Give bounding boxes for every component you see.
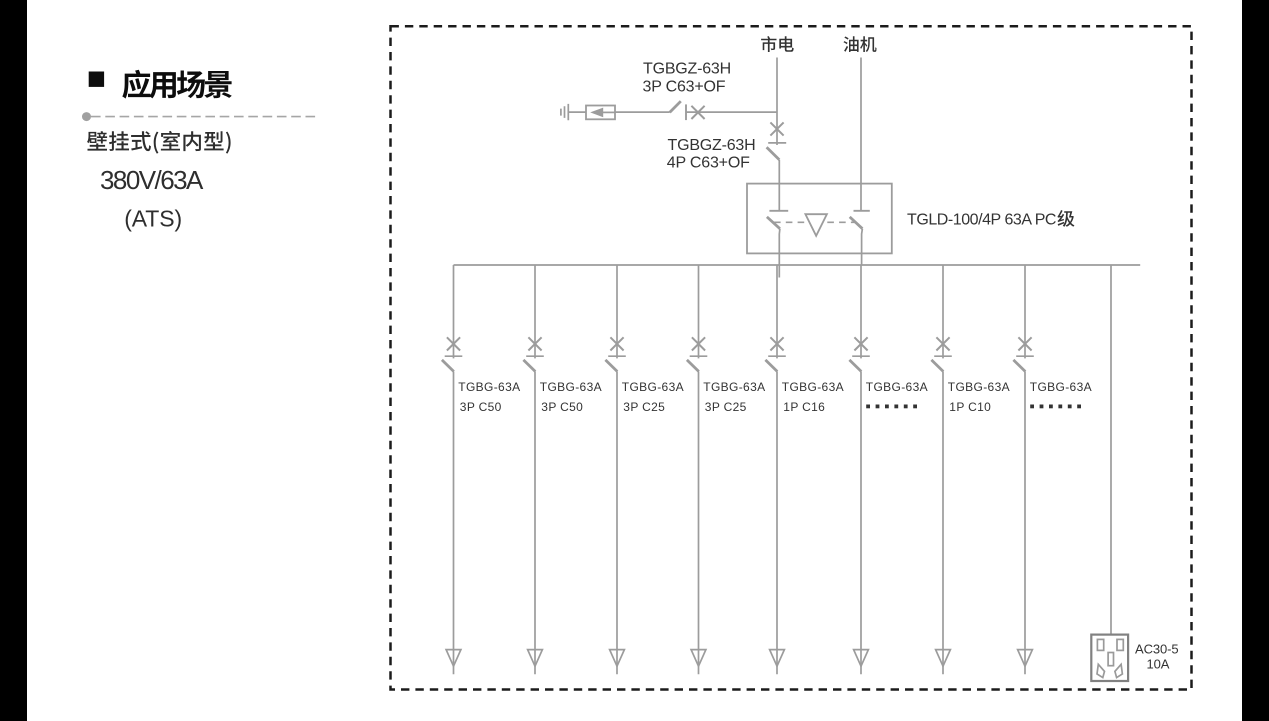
svg-text:(ATS): (ATS) xyxy=(124,206,182,232)
svg-text:1P C16: 1P C16 xyxy=(783,400,825,414)
svg-text:3P C50: 3P C50 xyxy=(460,400,502,414)
svg-text:3P C50: 3P C50 xyxy=(541,400,583,414)
svg-text:3P C25: 3P C25 xyxy=(705,400,747,414)
svg-text:AC30-5: AC30-5 xyxy=(1135,641,1178,656)
svg-text:TGBGZ-63H: TGBGZ-63H xyxy=(668,137,756,154)
svg-text:TGBG-63A: TGBG-63A xyxy=(948,380,1010,394)
svg-text:TGBG-63A: TGBG-63A xyxy=(866,380,928,394)
svg-text:10A: 10A xyxy=(1147,656,1170,671)
svg-text:TGBG-63A: TGBG-63A xyxy=(540,380,602,394)
svg-text:TGBG-63A: TGBG-63A xyxy=(782,380,844,394)
svg-text:TGLD-100/4P 63A PC: TGLD-100/4P 63A PC xyxy=(907,212,1056,229)
svg-text:3P C25: 3P C25 xyxy=(623,400,665,414)
svg-text:4P C63+OF: 4P C63+OF xyxy=(667,154,750,171)
svg-text:1P C10: 1P C10 xyxy=(949,400,991,414)
svg-text:380V/63A: 380V/63A xyxy=(100,165,204,195)
svg-text:TGBGZ-63H: TGBGZ-63H xyxy=(643,61,731,78)
svg-text:TGBG-63A: TGBG-63A xyxy=(458,380,520,394)
svg-text:TGBG-63A: TGBG-63A xyxy=(1030,380,1092,394)
svg-text:3P C63+OF: 3P C63+OF xyxy=(643,78,726,95)
svg-text:TGBG-63A: TGBG-63A xyxy=(703,380,765,394)
svg-text:TGBG-63A: TGBG-63A xyxy=(622,380,684,394)
